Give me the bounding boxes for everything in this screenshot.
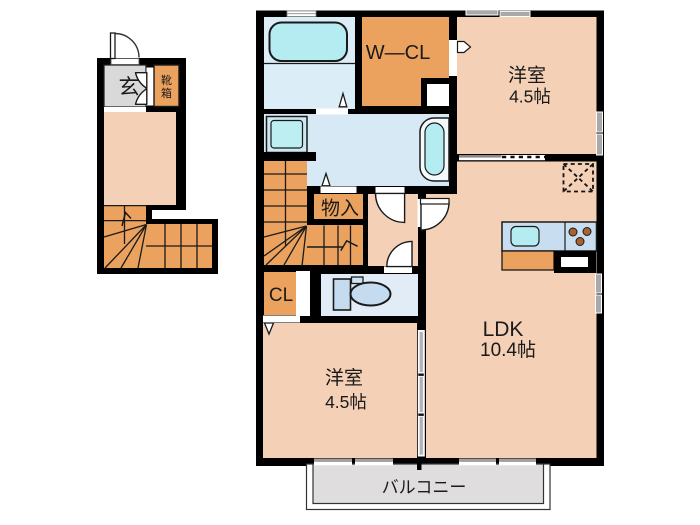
svg-text:10.4帖: 10.4帖 [480,339,536,361]
svg-text:CL: CL [269,285,293,306]
svg-text:LDK: LDK [483,318,524,341]
svg-text:4.5帖: 4.5帖 [325,392,367,412]
svg-text:バルコニー: バルコニー [382,478,467,497]
svg-text:靴: 靴 [161,73,172,87]
svg-text:物入: 物入 [321,198,359,220]
svg-text:箱: 箱 [161,86,172,100]
svg-text:洋室: 洋室 [325,367,363,389]
svg-text:玄: 玄 [119,76,140,99]
svg-text:W—CL: W—CL [366,42,430,64]
svg-text:4.5帖: 4.5帖 [509,87,551,107]
svg-text:洋室: 洋室 [508,65,546,87]
